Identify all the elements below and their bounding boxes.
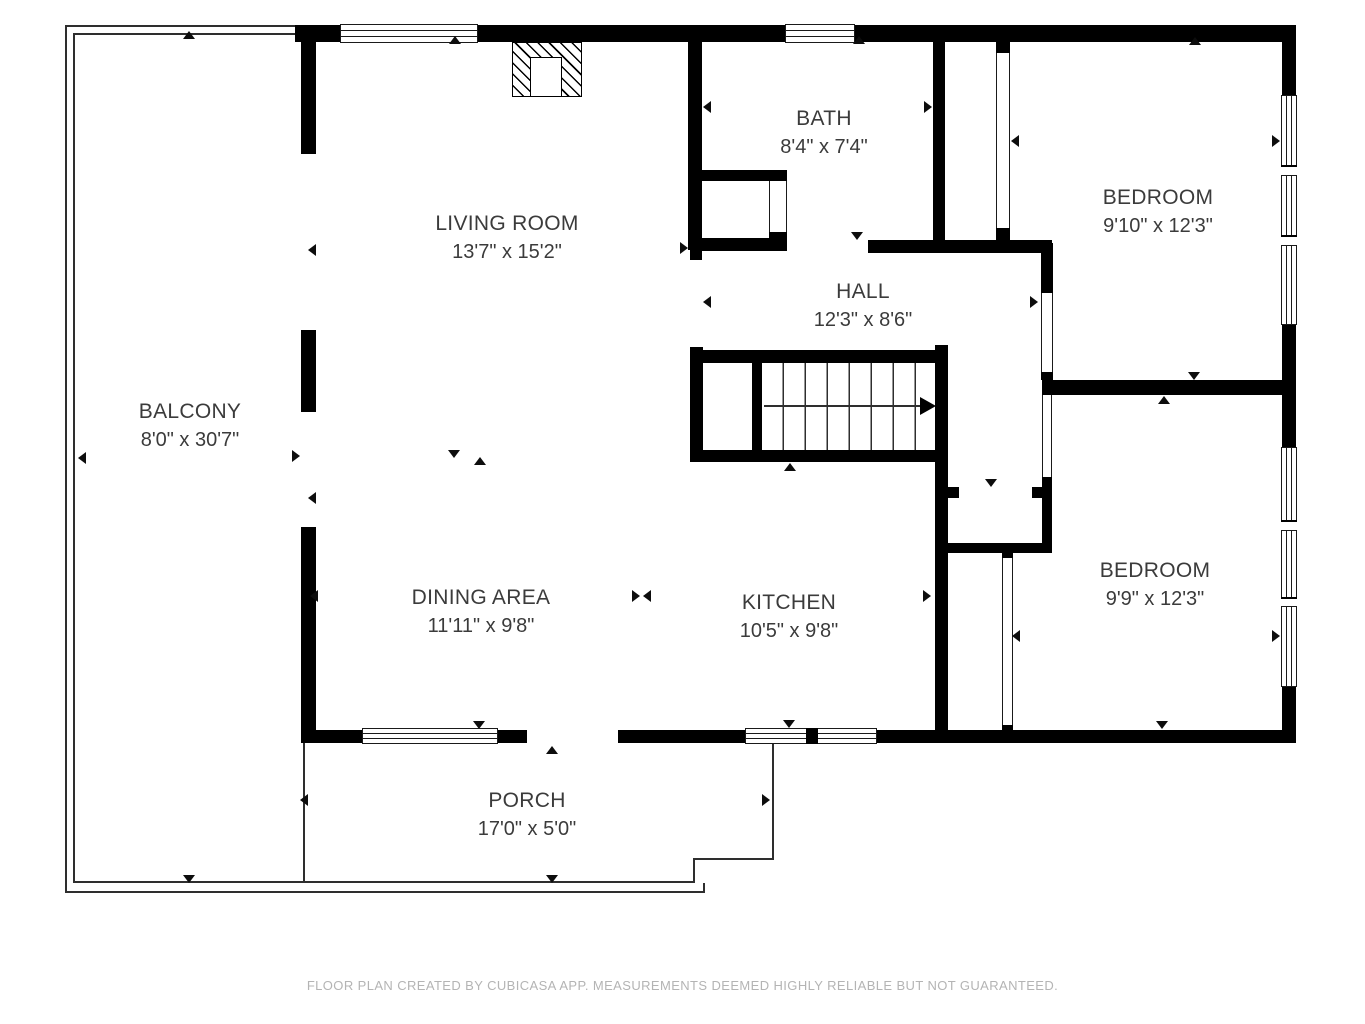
wall-closet-top-stub-a bbox=[996, 38, 1010, 53]
room-dims: 11'11" x 9'8" bbox=[361, 612, 601, 640]
window-kitchen-left bbox=[745, 728, 808, 744]
window-bath bbox=[785, 24, 855, 43]
fireplace-firebox bbox=[530, 57, 562, 97]
wall-living-bath bbox=[688, 42, 702, 250]
marker-dining-window-icon bbox=[473, 721, 485, 729]
marker-stairs-bottom-icon bbox=[784, 463, 796, 471]
room-name: LIVING ROOM bbox=[377, 210, 637, 238]
door-bedroom-bottom bbox=[1042, 395, 1052, 477]
marker-porch-right-icon bbox=[762, 794, 770, 806]
wall-bottom-2 bbox=[498, 730, 527, 743]
marker-bedroom-bottom-icon bbox=[1156, 721, 1168, 729]
balcony-outline-left-inner bbox=[73, 33, 75, 883]
door-closet-bedroom-top bbox=[996, 53, 1010, 228]
marker-living-top-icon bbox=[449, 36, 461, 44]
room-dims: 17'0" x 5'0" bbox=[417, 815, 637, 843]
door-bath-closet bbox=[769, 181, 787, 238]
marker-bath-door-icon bbox=[851, 232, 863, 240]
porch-outline-bottom bbox=[693, 858, 774, 860]
room-name: DINING AREA bbox=[361, 584, 601, 612]
room-dims: 10'5" x 9'8" bbox=[679, 617, 899, 645]
marker-bedroom-bottom-window-icon bbox=[1272, 630, 1280, 642]
window-bedroom-top-1 bbox=[1281, 95, 1297, 167]
room-name: BEDROOM bbox=[1045, 557, 1265, 585]
window-bedroom-bottom-2 bbox=[1281, 530, 1297, 600]
marker-kitchen-window-icon bbox=[783, 720, 795, 728]
wall-stairs-bottom bbox=[690, 450, 947, 462]
label-porch: PORCH 17'0" x 5'0" bbox=[417, 787, 637, 843]
marker-hall-right-icon bbox=[1030, 296, 1038, 308]
window-bedroom-top-2 bbox=[1281, 175, 1297, 237]
marker-living-dining-b-icon bbox=[474, 457, 486, 465]
label-bedroom-top: BEDROOM 9'10" x 12'3" bbox=[1048, 184, 1268, 240]
room-name: BALCONY bbox=[90, 398, 290, 426]
wall-bedroom-bottom-entry-stub bbox=[1042, 477, 1052, 487]
label-dining-area: DINING AREA 11'11" x 9'8" bbox=[361, 584, 601, 640]
marker-living-dining-a-icon bbox=[448, 450, 460, 458]
wall-closet-bottom-stub-a bbox=[1002, 547, 1013, 558]
balcony-step-line-v2 bbox=[703, 883, 705, 893]
marker-balcony-door1-icon bbox=[308, 244, 316, 256]
wall-bath-closet-top bbox=[695, 170, 787, 181]
room-name: PORCH bbox=[417, 787, 637, 815]
wall-left-3 bbox=[301, 527, 316, 743]
marker-hall-closet-door-icon bbox=[985, 479, 997, 487]
wall-bath-right bbox=[933, 25, 945, 253]
label-hall: HALL 12'3" x 8'6" bbox=[763, 278, 963, 334]
room-name: KITCHEN bbox=[679, 589, 899, 617]
marker-porch-left-icon bbox=[300, 794, 308, 806]
wall-hall-left-stub bbox=[690, 248, 702, 260]
wall-stairs-inner bbox=[752, 363, 762, 450]
wall-bedroom-divider bbox=[1042, 380, 1296, 395]
wall-bottom-3 bbox=[618, 730, 745, 743]
wall-bath-bottom bbox=[690, 238, 787, 251]
marker-porch-bottom-icon bbox=[546, 875, 558, 883]
floor-plan: BALCONY 8'0" x 30'7" LIVING ROOM 13'7" x… bbox=[0, 0, 1365, 1024]
marker-kitchen-right-icon bbox=[923, 590, 931, 602]
window-bedroom-bottom-1 bbox=[1281, 447, 1297, 522]
wall-left-2 bbox=[301, 330, 316, 412]
wall-top-3 bbox=[855, 25, 1296, 42]
wall-bedroom-top-entry-stub bbox=[1041, 372, 1053, 380]
room-dims: 8'0" x 30'7" bbox=[90, 426, 290, 454]
room-dims: 8'4" x 7'4" bbox=[744, 133, 904, 161]
marker-closet-top-icon bbox=[1011, 135, 1019, 147]
door-bedroom-top bbox=[1041, 293, 1053, 372]
label-bath: BATH 8'4" x 7'4" bbox=[744, 105, 904, 161]
marker-divider-bottom-icon bbox=[1158, 396, 1170, 404]
balcony-outline-bottom-outer bbox=[65, 891, 705, 893]
wall-left-1 bbox=[301, 25, 316, 154]
wall-stairs-left bbox=[690, 347, 703, 462]
marker-closet-bottom-icon bbox=[1012, 630, 1020, 642]
wall-bottom-1 bbox=[301, 730, 362, 743]
marker-living-right-icon bbox=[680, 242, 688, 254]
wall-bedroom-top-entry bbox=[1041, 243, 1053, 293]
marker-kitchen-open-a-icon bbox=[632, 590, 640, 602]
wall-closet-top-stub-b bbox=[996, 228, 1010, 242]
window-kitchen-mullion bbox=[806, 728, 818, 744]
wall-top-2 bbox=[478, 25, 785, 42]
marker-bedroom-top-window-icon bbox=[1272, 135, 1280, 147]
marker-balcony-top-icon bbox=[183, 31, 195, 39]
wall-stairs-top bbox=[690, 350, 947, 363]
label-living-room: LIVING ROOM 13'7" x 15'2" bbox=[377, 210, 637, 266]
wall-hall-closet-bottom bbox=[943, 543, 1052, 553]
footer-disclaimer: FLOOR PLAN CREATED BY CUBICASA APP. MEAS… bbox=[0, 978, 1365, 993]
marker-bath-top-icon bbox=[853, 36, 865, 44]
marker-bath-right-icon bbox=[924, 101, 932, 113]
wall-right-1 bbox=[1282, 25, 1296, 95]
marker-bedroom-top-icon bbox=[1189, 37, 1201, 45]
window-dining bbox=[362, 728, 498, 744]
window-kitchen-right bbox=[817, 728, 877, 744]
label-balcony: BALCONY 8'0" x 30'7" bbox=[90, 398, 290, 454]
marker-bath-left-icon bbox=[703, 101, 711, 113]
marker-balcony-bottom-icon bbox=[183, 875, 195, 883]
balcony-outline-left-outer bbox=[65, 25, 67, 893]
marker-kitchen-open-b-icon bbox=[643, 590, 651, 602]
marker-divider-top-icon bbox=[1188, 372, 1200, 380]
room-name: BEDROOM bbox=[1048, 184, 1268, 212]
balcony-step-line-v bbox=[693, 858, 695, 883]
room-dims: 13'7" x 15'2" bbox=[377, 238, 637, 266]
marker-balcony-left-icon bbox=[78, 452, 86, 464]
wall-hall-top bbox=[868, 240, 1052, 253]
marker-hall-left-icon bbox=[703, 296, 711, 308]
window-bedroom-bottom-3 bbox=[1281, 606, 1297, 687]
room-dims: 12'3" x 8'6" bbox=[763, 306, 963, 334]
marker-balcony-door2b-icon bbox=[308, 492, 316, 504]
room-dims: 9'9" x 12'3" bbox=[1045, 585, 1265, 613]
stairs-direction-arrow-icon bbox=[920, 397, 936, 415]
window-bedroom-top-3 bbox=[1281, 245, 1297, 325]
room-name: BATH bbox=[744, 105, 904, 133]
wall-hall-closet-top-a bbox=[943, 487, 959, 498]
marker-dining-left-icon bbox=[310, 590, 318, 602]
room-dims: 9'10" x 12'3" bbox=[1048, 212, 1268, 240]
wall-closet-bottom-stub-b bbox=[1002, 725, 1013, 737]
porch-outline-right bbox=[772, 743, 774, 860]
label-kitchen: KITCHEN 10'5" x 9'8" bbox=[679, 589, 899, 645]
room-name: HALL bbox=[763, 278, 963, 306]
stairs-direction-line bbox=[764, 405, 922, 407]
marker-porch-door-icon bbox=[546, 746, 558, 754]
balcony-outline-top-outer bbox=[65, 25, 297, 27]
porch-outline-left bbox=[303, 743, 305, 883]
label-bedroom-bottom: BEDROOM 9'9" x 12'3" bbox=[1045, 557, 1265, 613]
balcony-outline-bottom-inner bbox=[73, 881, 693, 883]
marker-balcony-door2a-icon bbox=[292, 450, 300, 462]
